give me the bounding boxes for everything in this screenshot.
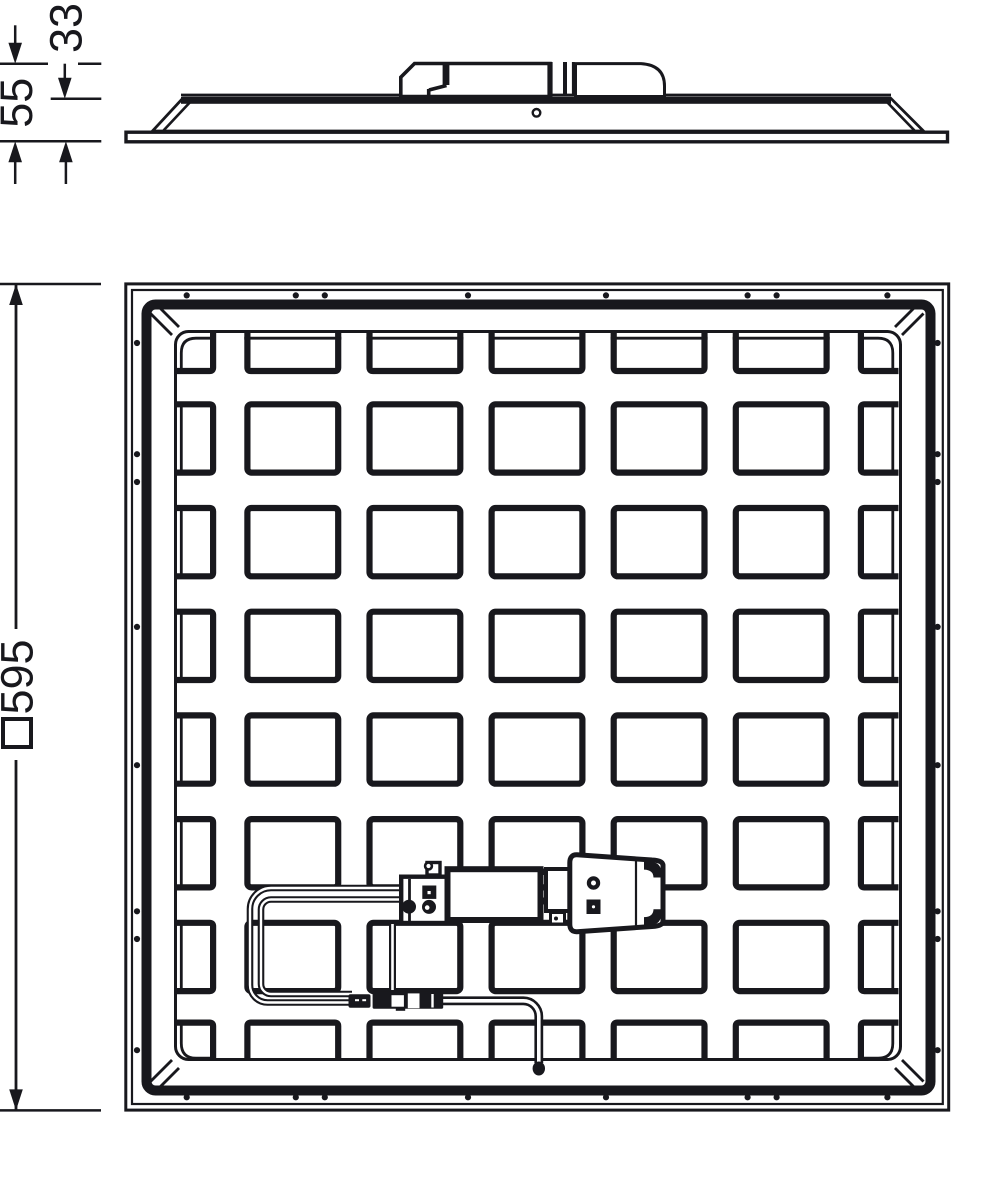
svg-text:33: 33 <box>41 3 92 53</box>
svg-text:55: 55 <box>0 78 42 128</box>
svg-text:595: 595 <box>0 639 43 714</box>
